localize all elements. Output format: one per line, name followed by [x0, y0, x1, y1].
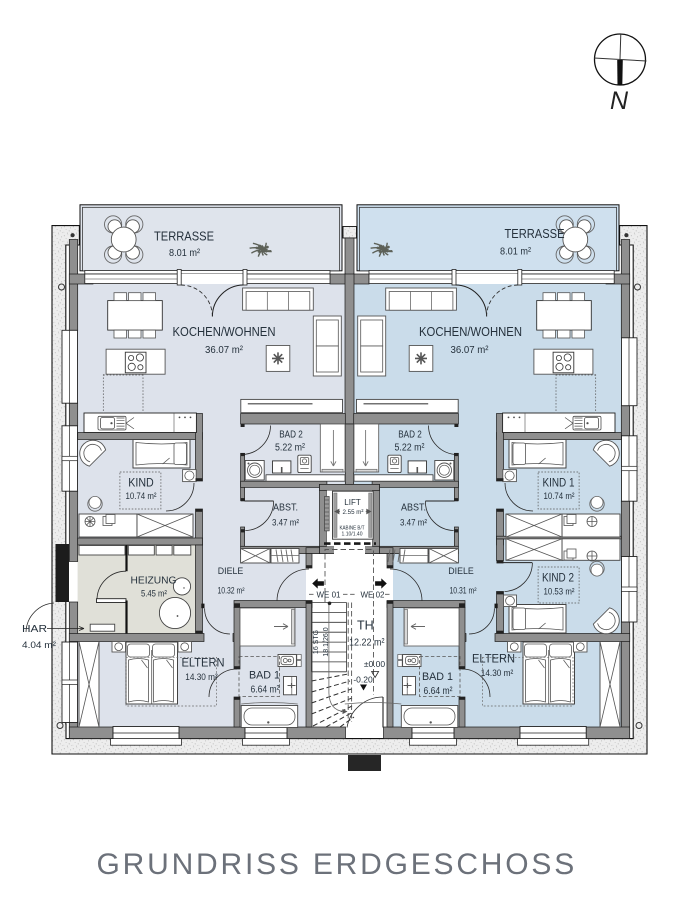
svg-text:BAD 2: BAD 2 — [279, 430, 303, 441]
svg-text:WE 02: WE 02 — [360, 591, 385, 600]
svg-text:WE 01: WE 01 — [316, 591, 341, 600]
svg-text:36.07 m²: 36.07 m² — [205, 344, 243, 356]
svg-text:LIFT: LIFT — [344, 498, 361, 507]
svg-text:KOCHEN/WOHNEN: KOCHEN/WOHNEN — [173, 325, 276, 339]
svg-text:10.74 m²: 10.74 m² — [544, 491, 575, 502]
svg-text:KIND 2: KIND 2 — [542, 573, 574, 585]
svg-text:GRUNDRISS ERDGESCHOSS: GRUNDRISS ERDGESCHOSS — [97, 848, 578, 881]
svg-text:18.1/26.0: 18.1/26.0 — [323, 627, 330, 656]
svg-text:5.22 m²: 5.22 m² — [395, 443, 426, 454]
svg-text:5.22 m²: 5.22 m² — [275, 443, 306, 454]
svg-text:TH: TH — [357, 619, 374, 633]
svg-text:DIELE: DIELE — [448, 566, 474, 577]
svg-text:10.32 m²: 10.32 m² — [218, 585, 245, 595]
svg-text:10.53 m²: 10.53 m² — [544, 587, 575, 598]
svg-text:8.01 m²: 8.01 m² — [169, 248, 201, 259]
svg-text:8.01 m²: 8.01 m² — [500, 247, 532, 258]
svg-text:3.47 m²: 3.47 m² — [400, 518, 427, 529]
svg-text:1.10/1.40: 1.10/1.40 — [342, 531, 363, 537]
svg-text:TERRASSE: TERRASSE — [505, 227, 565, 241]
svg-text:14.30 m²: 14.30 m² — [481, 668, 514, 679]
svg-text:36.07 m²: 36.07 m² — [451, 344, 489, 356]
svg-text:10.74 m²: 10.74 m² — [126, 491, 157, 502]
svg-text:5.45 m²: 5.45 m² — [141, 589, 167, 600]
svg-text:HAR: HAR — [22, 624, 47, 635]
svg-text:ELTERN: ELTERN — [472, 652, 515, 666]
svg-text:12.22 m²: 12.22 m² — [349, 638, 385, 649]
svg-text:HEIZUNG: HEIZUNG — [131, 576, 177, 587]
svg-text:BAD 2: BAD 2 — [398, 430, 422, 441]
svg-text:3.47 m²: 3.47 m² — [272, 518, 299, 529]
svg-text:BAD 1: BAD 1 — [422, 671, 453, 683]
svg-text:16 STG: 16 STG — [313, 630, 320, 654]
svg-text:DIELE: DIELE — [218, 566, 244, 577]
svg-text:KIND 1: KIND 1 — [543, 478, 575, 490]
svg-text:10.31 m²: 10.31 m² — [450, 585, 477, 595]
svg-text:ABST.: ABST. — [401, 502, 426, 514]
svg-text:±0.00: ±0.00 — [364, 659, 385, 669]
svg-text:ELTERN: ELTERN — [182, 656, 225, 670]
svg-text:ABST.: ABST. — [273, 502, 298, 514]
svg-text:6.64 m²: 6.64 m² — [251, 685, 281, 696]
svg-text:BAD 1: BAD 1 — [249, 670, 280, 682]
svg-text:6.64 m²: 6.64 m² — [424, 686, 454, 697]
svg-text:2.55 m²: 2.55 m² — [343, 509, 365, 516]
svg-text:-0.20: -0.20 — [353, 675, 373, 685]
svg-text:14.30 m²: 14.30 m² — [185, 672, 218, 683]
svg-text:KIND: KIND — [128, 478, 154, 490]
svg-text:TERRASSE: TERRASSE — [154, 230, 214, 244]
svg-text:4.04 m²: 4.04 m² — [22, 640, 56, 651]
svg-text:KOCHEN/WOHNEN: KOCHEN/WOHNEN — [419, 325, 522, 339]
svg-text:N: N — [610, 87, 629, 115]
